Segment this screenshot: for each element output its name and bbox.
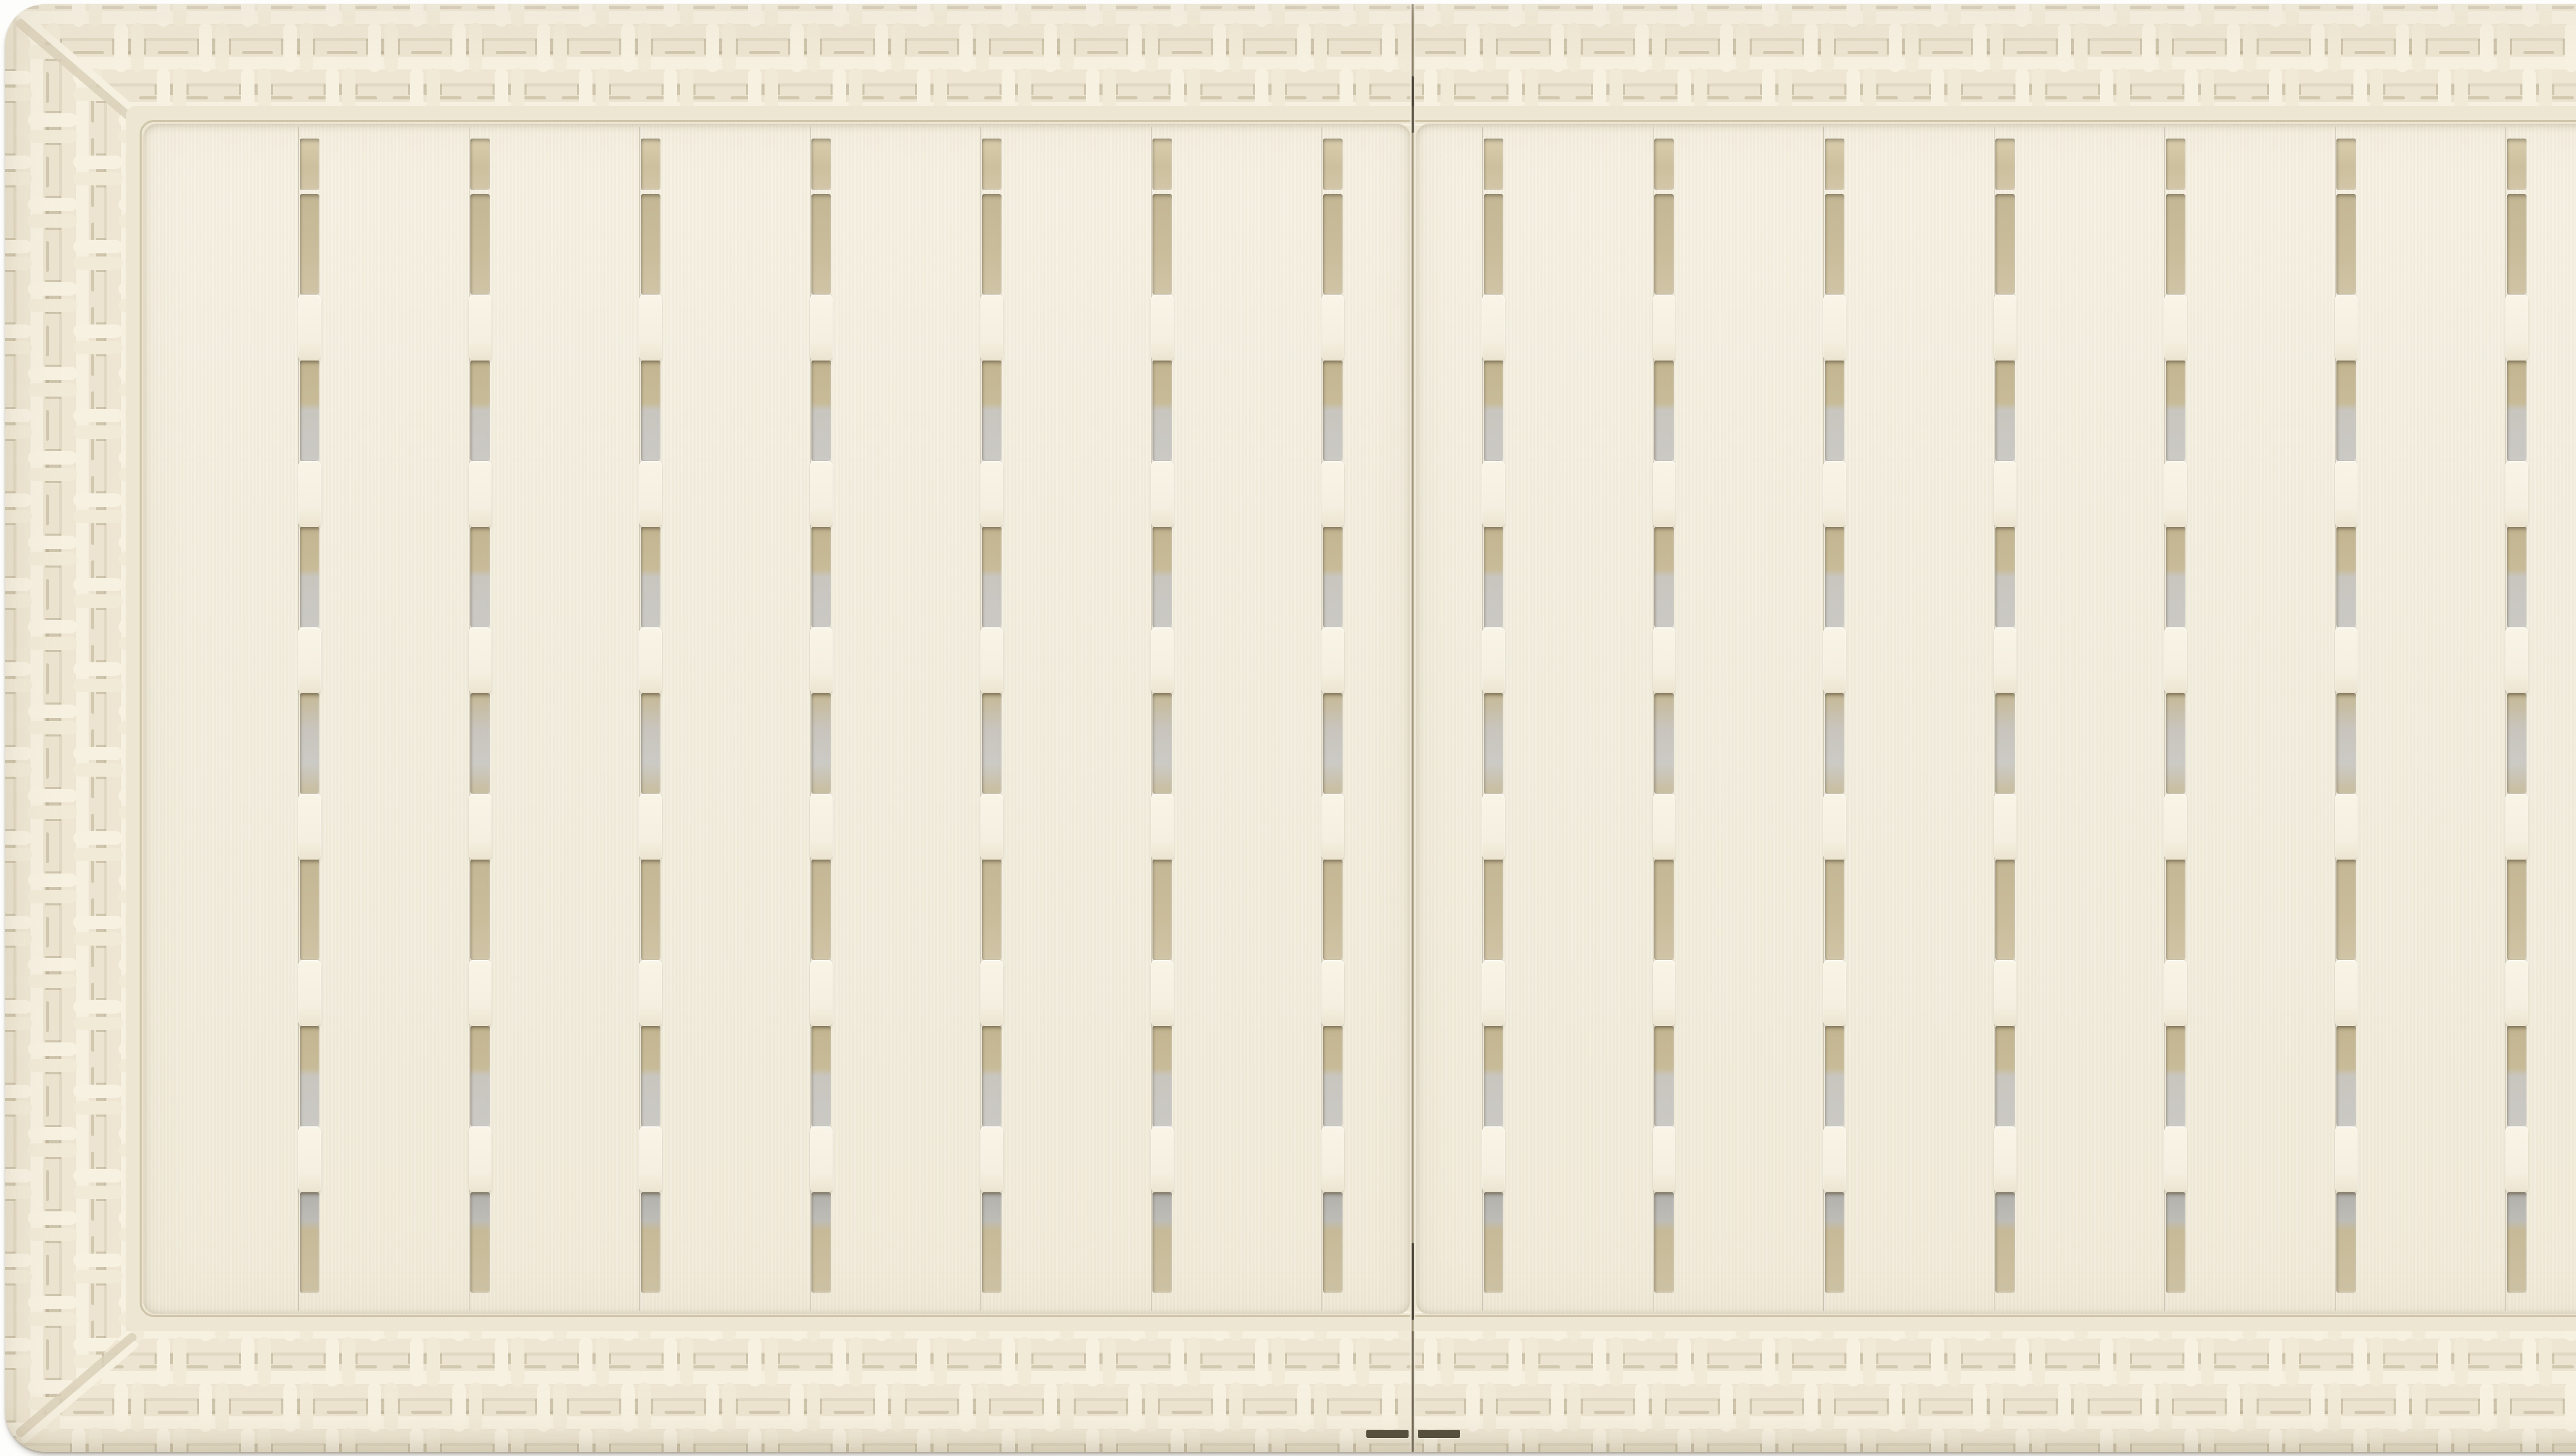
slot-gray-low (1153, 1026, 1172, 1126)
slot-gray-low (1323, 1026, 1343, 1126)
slot-gray-cap (1654, 1192, 1674, 1293)
slot-bridge (980, 295, 1003, 361)
slot-bridge (2335, 295, 2358, 361)
slot-bridge (1653, 794, 1675, 860)
slot-gray-low (641, 527, 660, 627)
slot-bridge (1151, 960, 1174, 1026)
slot-bridge (1151, 1126, 1174, 1192)
slot-tan (641, 194, 660, 295)
slot-bridge (1994, 461, 2016, 527)
slot-gray-low (2507, 527, 2527, 627)
slot-bridge (1823, 461, 1846, 527)
slot-tan (1654, 860, 1674, 960)
slot-gray-low (1323, 361, 1343, 461)
slot-tan (1654, 194, 1674, 295)
slot-bridge (469, 960, 492, 1026)
slot-gray-cap (470, 1192, 490, 1293)
slot-gray-low (1995, 361, 2015, 461)
slot-gray-low (470, 527, 490, 627)
slot-bridge (2164, 1126, 2187, 1192)
slot-gray-cap (811, 1192, 831, 1293)
slot-gray-mid (1995, 693, 2015, 794)
slot-tan (2507, 860, 2527, 960)
slot-bridge (469, 627, 492, 693)
slot-gray-low (1323, 527, 1343, 627)
slot-bridge (1653, 295, 1675, 361)
slot-bridge (2164, 295, 2187, 361)
slot-column (1484, 124, 1503, 1314)
slot-bridge (2335, 627, 2358, 693)
slot-bridge (810, 461, 833, 527)
slot-gray-cap (2507, 1192, 2527, 1293)
slot-tan (2336, 194, 2356, 295)
slot-tan (2166, 860, 2185, 960)
slot-gray-cap (2166, 1192, 2185, 1293)
slot-column (1995, 124, 2015, 1314)
slot-tan (811, 860, 831, 960)
slot-column (300, 124, 319, 1314)
slot-gray-low (2336, 361, 2356, 461)
slot-bridge (980, 1126, 1003, 1192)
slot-gray-low (1995, 527, 2015, 627)
slot-gray-low (1484, 361, 1503, 461)
slot-tan-light (982, 139, 1002, 190)
slot-gray-low (2336, 1026, 2356, 1126)
slot-bridge (1994, 794, 2016, 860)
slot-gray-low (300, 1026, 319, 1126)
slot-bridge (1482, 461, 1505, 527)
slot-bridge (639, 1126, 662, 1192)
slot-gray-low (811, 361, 831, 461)
slot-bridge (298, 960, 321, 1026)
slot-bridge (980, 794, 1003, 860)
slot-gray-mid (1323, 693, 1343, 794)
slot-tan-light (2336, 139, 2356, 190)
slot-tan-light (641, 139, 660, 190)
slot-column (1323, 124, 1343, 1314)
slot-gray-low (1825, 361, 1844, 461)
slot-gray-low (1654, 1026, 1674, 1126)
slot-bridge (1321, 794, 1344, 860)
slot-gray-cap (1825, 1192, 1844, 1293)
slot-gray-cap (1323, 1192, 1343, 1293)
slot-tan (2336, 860, 2356, 960)
slot-tan (2507, 194, 2527, 295)
slot-gray-mid (1484, 693, 1503, 794)
slot-tan (641, 860, 660, 960)
slot-bridge (1994, 1126, 2016, 1192)
slot-gray-low (1654, 361, 1674, 461)
slot-bridge (1321, 627, 1344, 693)
slot-bridge (1653, 1126, 1675, 1192)
slot-gray-mid (2336, 693, 2356, 794)
slot-tan (1995, 194, 2015, 295)
slot-bridge (1321, 461, 1344, 527)
slot-tan (1153, 194, 1172, 295)
slot-tan (1323, 194, 1343, 295)
center-fold-seam (1410, 4, 1416, 1452)
slot-gray-low (2507, 361, 2527, 461)
slot-gray-low (1825, 527, 1844, 627)
slot-gray-low (811, 1026, 831, 1126)
slot-gray-mid (470, 693, 490, 794)
slot-tan-light (1484, 139, 1503, 190)
slot-bridge (1823, 960, 1846, 1026)
slot-tan-light (470, 139, 490, 190)
slot-tan (1825, 860, 1844, 960)
slot-bridge (810, 627, 833, 693)
slot-bridge (1482, 794, 1505, 860)
slot-gray-low (470, 1026, 490, 1126)
slot-gray-mid (1654, 693, 1674, 794)
slot-gray-low (2336, 527, 2356, 627)
slot-gray-cap (641, 1192, 660, 1293)
slot-bridge (298, 627, 321, 693)
slot-bridge (298, 295, 321, 361)
slot-bridge (980, 960, 1003, 1026)
slot-column (2336, 124, 2356, 1314)
slot-bridge (2335, 794, 2358, 860)
slot-bridge (1823, 1126, 1846, 1192)
slot-bridge (2164, 960, 2187, 1026)
slot-tan-light (1825, 139, 1844, 190)
slot-tan-light (2166, 139, 2185, 190)
slot-gray-low (982, 1026, 1002, 1126)
slot-column (982, 124, 1002, 1314)
slot-bridge (1151, 627, 1174, 693)
slot-bridge (2505, 461, 2528, 527)
slot-bridge (1994, 960, 2016, 1026)
slot-gray-low (1484, 1026, 1503, 1126)
slot-column (470, 124, 490, 1314)
weave-strip-bottom (5, 1331, 2576, 1452)
slot-bridge (1823, 794, 1846, 860)
slot-gray-low (2166, 1026, 2185, 1126)
slot-bridge (1994, 627, 2016, 693)
slot-gray-low (470, 361, 490, 461)
seam-shadow-segment (1412, 1243, 1414, 1320)
slot-gray-mid (2507, 693, 2527, 794)
slot-tan (1323, 860, 1343, 960)
slot-bridge (1653, 461, 1675, 527)
slot-bridge (2505, 960, 2528, 1026)
slot-bridge (298, 461, 321, 527)
slot-gray-mid (2166, 693, 2185, 794)
slot-gray-low (2166, 527, 2185, 627)
slot-bridge (2164, 794, 2187, 860)
slot-bridge (298, 794, 321, 860)
slot-gray-low (982, 527, 1002, 627)
slot-gray-low (1995, 1026, 2015, 1126)
slot-bridge (2164, 627, 2187, 693)
slot-bridge (1321, 295, 1344, 361)
edge-latch-notch (1366, 1430, 1409, 1438)
slot-bridge (469, 461, 492, 527)
slot-bridge (2505, 1126, 2528, 1192)
slot-tan (982, 860, 1002, 960)
slot-column (1153, 124, 1172, 1314)
slot-gray-mid (982, 693, 1002, 794)
slot-gray-low (1654, 527, 1674, 627)
slot-bridge (810, 295, 833, 361)
slot-bridge (1151, 794, 1174, 860)
slot-column (2166, 124, 2185, 1314)
slot-tan-light (300, 139, 319, 190)
slot-gray-low (300, 527, 319, 627)
slot-bridge (2505, 295, 2528, 361)
slot-bridge (469, 794, 492, 860)
table-panel-right (1416, 124, 2576, 1314)
slot-bridge (1482, 627, 1505, 693)
seam-shadow-segment (1412, 1331, 1414, 1452)
slot-gray-low (300, 361, 319, 461)
slot-tan (982, 194, 1002, 295)
slot-gray-cap (300, 1192, 319, 1293)
weave-strip-left (5, 4, 126, 1452)
slot-tan (1153, 860, 1172, 960)
slot-gray-low (1153, 361, 1172, 461)
slot-bridge (639, 461, 662, 527)
slot-gray-low (641, 361, 660, 461)
slot-bridge (1482, 1126, 1505, 1192)
slot-tan-light (2507, 139, 2527, 190)
slot-gray-low (641, 1026, 660, 1126)
slot-bridge (2335, 461, 2358, 527)
slot-gray-low (1825, 1026, 1844, 1126)
slot-bridge (1151, 295, 1174, 361)
slot-bridge (1151, 461, 1174, 527)
slot-bridge (639, 794, 662, 860)
slot-bridge (1823, 295, 1846, 361)
slot-tan (470, 194, 490, 295)
slot-gray-cap (2336, 1192, 2356, 1293)
slot-gray-low (811, 527, 831, 627)
table-panel-left (143, 124, 1411, 1314)
slot-tan-light (1153, 139, 1172, 190)
slot-bridge (469, 1126, 492, 1192)
slot-tan-light (1995, 139, 2015, 190)
slot-gray-cap (1153, 1192, 1172, 1293)
slot-gray-low (1484, 527, 1503, 627)
slot-gray-mid (300, 693, 319, 794)
slot-tan (811, 194, 831, 295)
slot-bridge (298, 1126, 321, 1192)
slot-column (641, 124, 660, 1314)
slot-bridge (980, 461, 1003, 527)
slot-tan (470, 860, 490, 960)
slot-column (1654, 124, 1674, 1314)
slot-bridge (639, 295, 662, 361)
slot-gray-low (2166, 361, 2185, 461)
slot-gray-low (982, 361, 1002, 461)
slot-bridge (1653, 627, 1675, 693)
slot-bridge (1653, 960, 1675, 1026)
slot-column (811, 124, 831, 1314)
weave-strip-top (5, 4, 2576, 106)
slot-bridge (469, 295, 492, 361)
slot-bridge (980, 627, 1003, 693)
slot-gray-cap (1484, 1192, 1503, 1293)
seam-shadow-segment (1412, 106, 1414, 1331)
slot-tan (1825, 194, 1844, 295)
slot-gray-low (1153, 527, 1172, 627)
slot-gray-cap (1995, 1192, 2015, 1293)
slot-tan-light (1323, 139, 1343, 190)
slot-tan (1484, 860, 1503, 960)
slot-bridge (1994, 295, 2016, 361)
table-top (5, 4, 2576, 1452)
slot-bridge (1482, 295, 1505, 361)
slot-gray-mid (811, 693, 831, 794)
slot-tan-light (1654, 139, 1674, 190)
slot-bridge (1321, 960, 1344, 1026)
slot-bridge (1321, 1126, 1344, 1192)
slot-tan-light (811, 139, 831, 190)
slot-bridge (639, 960, 662, 1026)
slot-gray-mid (1153, 693, 1172, 794)
slot-column (2507, 124, 2527, 1314)
slot-gray-cap (982, 1192, 1002, 1293)
slot-gray-mid (641, 693, 660, 794)
slot-gray-low (2507, 1026, 2527, 1126)
slot-bridge (810, 1126, 833, 1192)
slot-tan (1484, 194, 1503, 295)
slot-bridge (2335, 960, 2358, 1026)
slot-column (1825, 124, 1844, 1314)
slot-gray-mid (1825, 693, 1844, 794)
slot-bridge (810, 794, 833, 860)
slot-bridge (2505, 627, 2528, 693)
slot-bridge (639, 627, 662, 693)
slot-tan (300, 194, 319, 295)
slot-bridge (2505, 794, 2528, 860)
slot-bridge (1823, 627, 1846, 693)
slot-tan (1995, 860, 2015, 960)
slot-bridge (1482, 960, 1505, 1026)
slot-bridge (2335, 1126, 2358, 1192)
slot-tan (2166, 194, 2185, 295)
edge-latch-notch (1418, 1430, 1460, 1438)
slot-bridge (2164, 461, 2187, 527)
slot-bridge (810, 960, 833, 1026)
slot-tan (300, 860, 319, 960)
